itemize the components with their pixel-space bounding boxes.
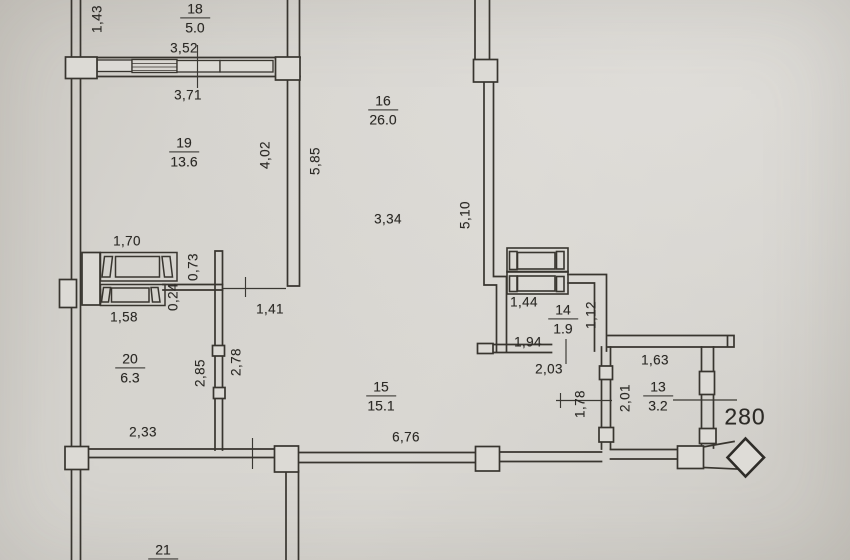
dim-label-0-24: 0,24 <box>166 283 181 311</box>
dim-label-2-03: 2,03 <box>535 362 563 377</box>
shaft-fixtures <box>507 248 568 294</box>
room-number: 13 <box>643 378 673 396</box>
dim-label-3-34: 3,34 <box>374 212 402 227</box>
window <box>97 60 273 73</box>
room-label-20: 206.3 <box>115 350 145 385</box>
dim-label-5-10: 5,10 <box>458 201 473 229</box>
dim-label-2-33: 2,33 <box>129 425 157 440</box>
floor-plan-drawing <box>0 0 850 560</box>
dim-label-3-71: 3,71 <box>174 88 202 103</box>
room-label-19: 1913.6 <box>169 134 199 169</box>
dim-label-1-41: 1,41 <box>256 302 284 317</box>
room-area: 13.6 <box>170 153 197 170</box>
dim-label-1-44: 1,44 <box>510 295 538 310</box>
dim-label-1-70: 1,70 <box>113 234 141 249</box>
dim-label-1-63: 1,63 <box>641 353 669 368</box>
section-marker-280: 280 <box>724 404 765 431</box>
room-number: 21 <box>148 541 178 559</box>
dim-label-1-43: 1,43 <box>90 5 105 33</box>
room-number: 15 <box>366 378 396 396</box>
room-label-15: 1515.1 <box>366 378 396 413</box>
wardrobe-fixtures <box>92 253 178 306</box>
dim-label-2-01: 2,01 <box>618 384 633 412</box>
room-label-16: 1626.0 <box>368 92 398 127</box>
dim-label-6-76: 6,76 <box>392 430 420 445</box>
dim-label-4-02: 4,02 <box>258 141 273 169</box>
room-label-14: 141.9 <box>548 301 578 336</box>
dim-label-1-94: 1,94 <box>514 335 542 350</box>
room-number: 14 <box>548 301 578 319</box>
room-number: 18 <box>180 0 210 18</box>
room-number: 20 <box>115 350 145 368</box>
dim-label-2-78: 2,78 <box>229 348 244 376</box>
room-number: 16 <box>368 92 398 110</box>
walls <box>70 0 748 560</box>
room-number: 19 <box>169 134 199 152</box>
dim-label-1-78: 1,78 <box>573 390 588 418</box>
room-label-21: 21 <box>148 541 178 560</box>
room-area: 15.1 <box>367 397 394 414</box>
room-area: 26.0 <box>369 111 396 128</box>
dim-label-5-85: 5,85 <box>308 147 323 175</box>
room-label-18: 185.0 <box>180 0 210 35</box>
room-area: 3.2 <box>648 397 667 414</box>
dim-label-1-58: 1,58 <box>110 310 138 325</box>
floor-plan-photo: 185.0 1913.6 1626.0 206.3 1515.1 141.9 1… <box>0 0 850 560</box>
room-area: 6.3 <box>120 369 139 386</box>
dim-label-2-85: 2,85 <box>193 359 208 387</box>
dim-label-1-12: 1,12 <box>584 301 599 329</box>
room-label-13: 133.2 <box>643 378 673 413</box>
dim-label-3-52: 3,52 <box>170 41 198 56</box>
room-area: 5.0 <box>185 19 204 36</box>
room-area: 1.9 <box>553 320 572 337</box>
entrance-diamond-icon <box>728 439 765 477</box>
dim-label-0-73: 0,73 <box>186 253 201 281</box>
